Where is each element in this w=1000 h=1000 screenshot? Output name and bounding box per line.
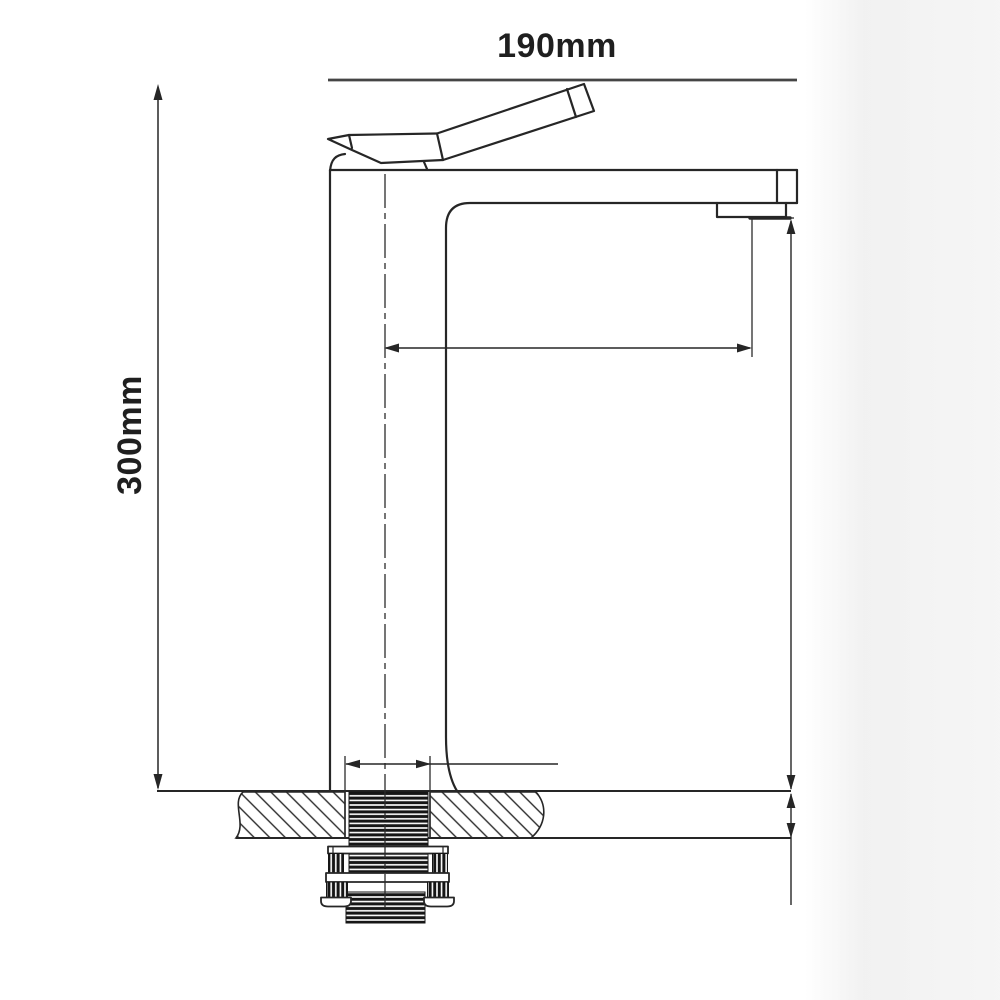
handle-base-tick	[424, 162, 427, 169]
arrow-left-icon	[384, 344, 399, 353]
counter-cross-section	[157, 791, 791, 838]
height-dimension-label: 300mm	[111, 365, 151, 505]
extension-lines	[345, 218, 794, 838]
counter-hatch-right	[430, 792, 544, 838]
dimension-height-300	[154, 84, 163, 790]
faucet-handle	[328, 84, 594, 171]
dimension-counter-thickness	[787, 793, 796, 905]
technical-drawing-page: 190mm 300mm	[0, 0, 1000, 1000]
faucet-body-outline	[330, 170, 797, 791]
arrow-up-icon	[154, 84, 163, 100]
arrow-right-icon	[416, 760, 431, 768]
mounting-shank-threads	[346, 792, 428, 923]
spout-underside-and-right-edge	[446, 203, 797, 791]
dimension-shank-diameter	[345, 760, 558, 768]
arrow-down-icon	[787, 775, 796, 790]
dimension-spout-height	[787, 219, 796, 790]
arrow-down-icon	[787, 823, 796, 838]
width-dimension-label: 190mm	[492, 27, 622, 66]
shank-thread-upper	[349, 792, 428, 847]
shank-thread-middle	[349, 854, 428, 874]
cartridge-dome-arc	[330, 154, 345, 171]
aerator-outline	[717, 203, 786, 217]
wing-right	[428, 882, 449, 898]
dimension-spout-reach	[384, 344, 752, 353]
arrow-up-icon	[787, 793, 796, 808]
knurl-right	[433, 854, 448, 874]
arrow-down-icon	[154, 774, 163, 790]
handle-outline	[328, 84, 594, 163]
wing-foot-right	[424, 898, 454, 907]
mounting-washer	[328, 847, 448, 854]
arrow-right-icon	[737, 344, 752, 353]
lock-nut-flange	[326, 873, 449, 882]
counter-hatch-left	[236, 792, 345, 838]
wing-foot-left	[321, 898, 351, 907]
wing-left	[327, 882, 348, 898]
knurl-left	[329, 854, 344, 874]
spout-aerator	[717, 203, 790, 218]
arrow-left-icon	[345, 760, 360, 768]
arrow-up-icon	[787, 219, 796, 234]
